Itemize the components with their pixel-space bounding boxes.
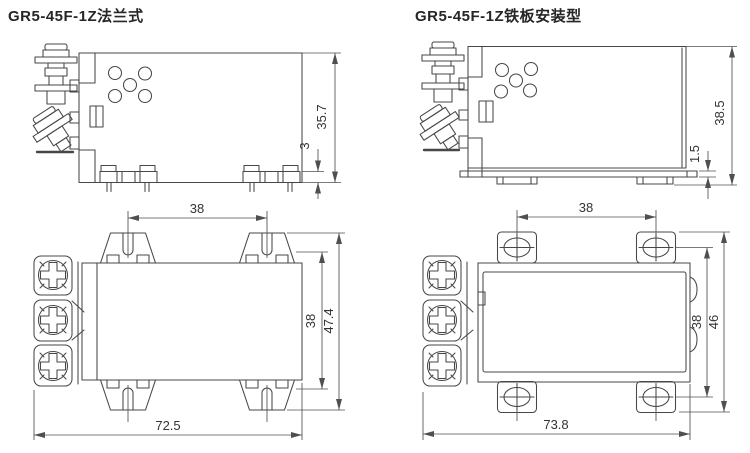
- flange-slot-spacing-dim-label: 38: [190, 201, 204, 216]
- flange-overall-height-dim-label: 47.4: [321, 308, 336, 333]
- drawings-canvas: 35.7 3: [0, 0, 750, 453]
- plate-side-view-dimensions: 38.5 1.5: [674, 47, 737, 200]
- flange-width-dim-label: 72.5: [155, 418, 180, 433]
- plate-thickness-dim-label: 1.5: [687, 145, 702, 163]
- flange-side-view: [25, 44, 302, 192]
- plate-top-view: [423, 232, 697, 413]
- plate-tab-span-dim-label: 46: [706, 315, 721, 329]
- plate-hole-spacing-dim-label: 38: [579, 200, 593, 215]
- plate-vertical-span-dim-label: 38: [689, 315, 704, 329]
- flange-side-view-dimensions: 35.7 3: [297, 53, 341, 199]
- flange-height-dim-label: 35.7: [314, 104, 329, 129]
- plate-height-dim-label: 38.5: [712, 100, 727, 125]
- flange-pin-height-dim-label: 3: [297, 142, 312, 149]
- flange-vertical-span-dim-label: 38: [303, 314, 318, 328]
- flange-top-view-dimensions: 38 38 47.4 72.5: [34, 201, 345, 440]
- plate-top-view-dimensions: 38 38 46 73.8: [423, 200, 730, 440]
- flange-top-view: [34, 233, 302, 410]
- plate-width-dim-label: 73.8: [543, 417, 568, 432]
- plate-side-view: [412, 42, 697, 184]
